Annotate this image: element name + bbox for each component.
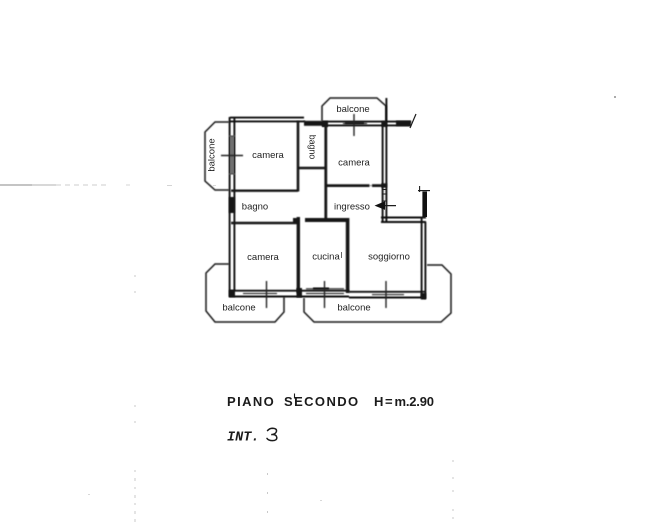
svg-text:=: = [385, 394, 394, 409]
svg-text:ingresso: ingresso [334, 202, 370, 213]
svg-text:camera: camera [252, 150, 284, 161]
svg-text:bagno: bagno [308, 135, 318, 160]
svg-text:bagno: bagno [242, 202, 268, 213]
svg-text:m.2.90: m.2.90 [395, 394, 434, 409]
svg-text:H: H [374, 394, 385, 409]
svg-text:balcone: balcone [222, 303, 255, 314]
svg-text:balcone: balcone [336, 104, 369, 115]
svg-text:PIANO: PIANO [227, 394, 275, 409]
svg-text:camera: camera [247, 252, 279, 263]
svg-text:balcone: balcone [337, 303, 370, 314]
svg-text:INT.: INT. [227, 431, 259, 446]
svg-text:SECONDO: SECONDO [284, 394, 360, 409]
svg-text:cucina: cucina [312, 252, 340, 263]
svg-text:soggiorno: soggiorno [368, 252, 410, 263]
svg-text:balcone: balcone [207, 138, 218, 171]
svg-text:camera: camera [338, 158, 370, 169]
